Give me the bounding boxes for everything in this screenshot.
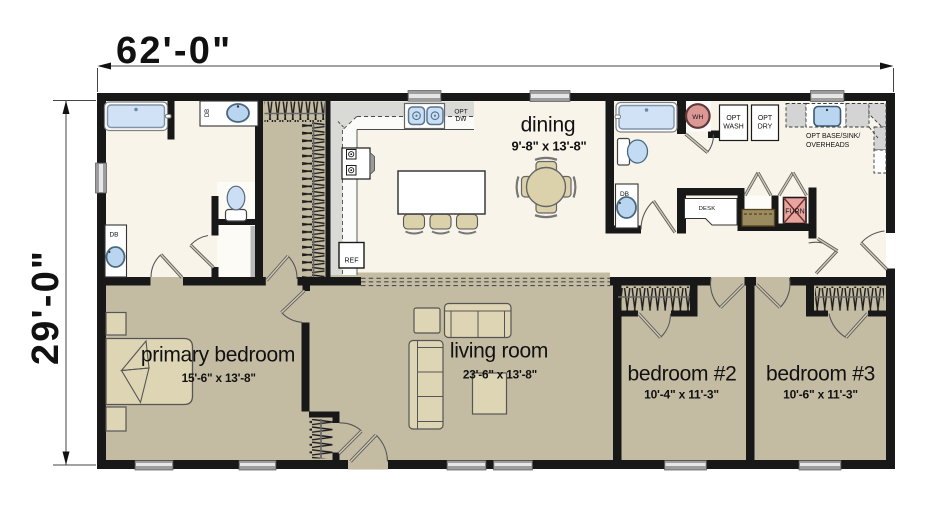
svg-text:OVERHEADS: OVERHEADS [806,142,850,149]
svg-text:DW: DW [456,116,468,123]
svg-text:DB: DB [109,232,118,239]
svg-text:10'-4" x 11'-3": 10'-4" x 11'-3" [644,388,719,402]
svg-text:DRY: DRY [758,124,773,131]
svg-text:REF: REF [345,258,359,265]
svg-text:62'-0": 62'-0" [116,30,232,72]
svg-text:15'-6" x 13'-8": 15'-6" x 13'-8" [182,371,256,385]
svg-text:10'-6" x 11'-3": 10'-6" x 11'-3" [783,388,858,402]
svg-text:9'-8" x 13'-8": 9'-8" x 13'-8" [512,139,587,154]
svg-text:OPT BASE/SINK/: OPT BASE/SINK/ [806,133,860,140]
svg-text:bedroom #2: bedroom #2 [627,362,736,385]
svg-text:living room: living room [450,340,548,363]
svg-text:WH: WH [692,114,703,121]
svg-text:OPT: OPT [726,115,741,122]
svg-text:DESK: DESK [699,206,716,212]
svg-text:WASH: WASH [723,124,743,131]
svg-text:23'-6" x 13'-8": 23'-6" x 13'-8" [463,368,537,382]
svg-text:dining: dining [521,114,576,137]
svg-text:primary bedroom: primary bedroom [141,344,295,367]
svg-text:FURN: FURN [785,209,804,216]
svg-text:OPT: OPT [454,109,467,116]
svg-text:DB: DB [205,109,211,117]
svg-text:bedroom #3: bedroom #3 [766,362,875,385]
svg-text:OPT: OPT [758,115,773,122]
svg-text:29'-0": 29'-0" [25,249,67,365]
